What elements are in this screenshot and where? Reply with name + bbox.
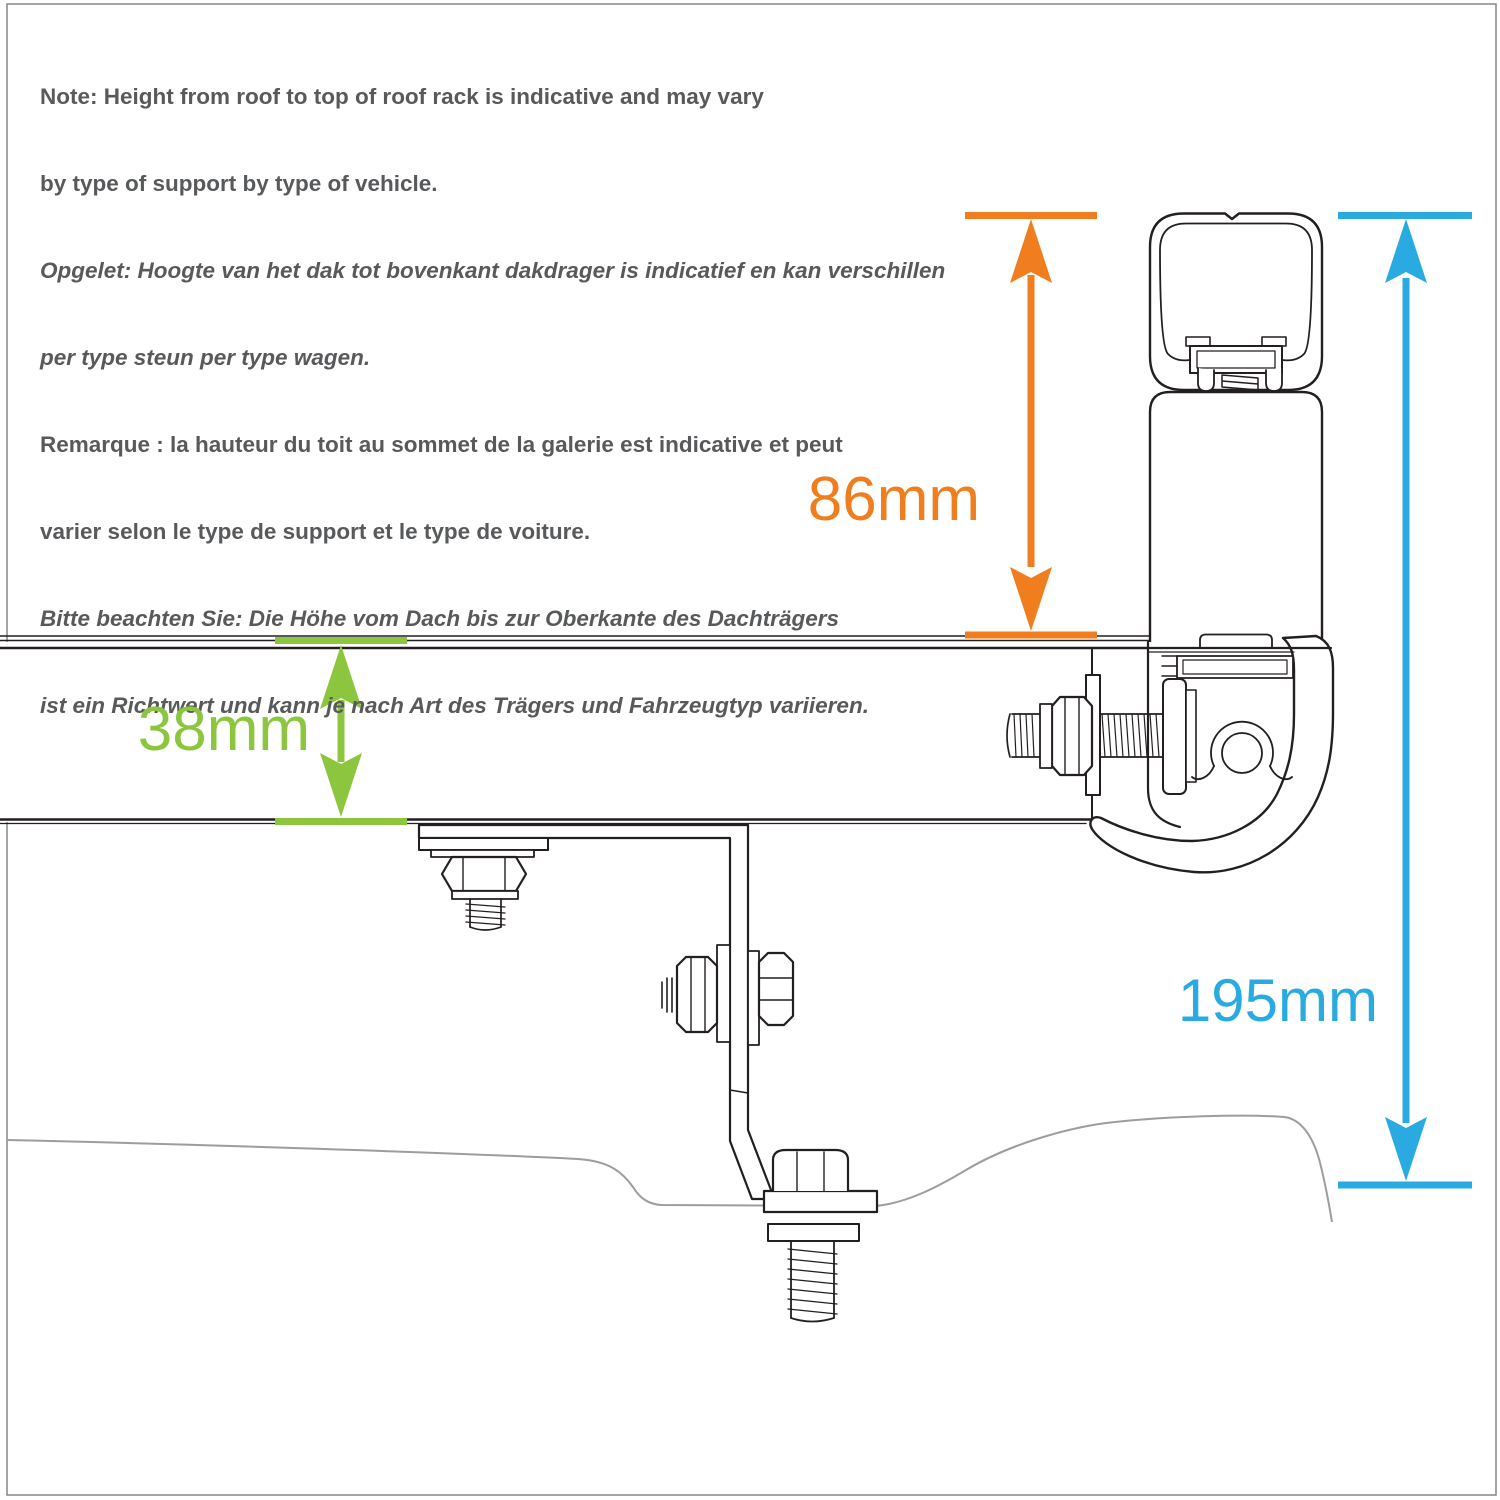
bracket-foot [764,1150,877,1322]
dimension-label-195mm: 195mm [1098,966,1378,1035]
note-line: per type steun per type wagen. [40,343,945,372]
dimension-label-38mm: 38mm [30,694,310,765]
dimension-arrow-86mm [965,212,1097,639]
bracket-upper-fastener [419,838,548,930]
crossbar-clamp-profile [1150,214,1322,392]
car-roofline [7,1116,1332,1222]
diagram-canvas: Note: Height from roof to top of roof ra… [0,0,1500,1500]
note-line: Opgelet: Hoogte van het dak tot bovenkan… [40,256,945,285]
note-line: Note: Height from roof to top of roof ra… [40,82,945,111]
dimension-label-86mm: 86mm [700,464,980,535]
bracket-middle-bolt [662,945,793,1045]
clamp-foot [1090,635,1333,873]
note-line: Bitte beachten Sie: Die Höhe vom Dach bi… [40,604,945,633]
note-line: Remarque : la hauteur du toit au sommet … [40,430,945,459]
gutter-bracket [419,825,877,1322]
note-text: Note: Height from roof to top of roof ra… [40,24,945,778]
note-line: by type of support by type of vehicle. [40,169,945,198]
dimension-arrow-195mm [1338,212,1472,1189]
